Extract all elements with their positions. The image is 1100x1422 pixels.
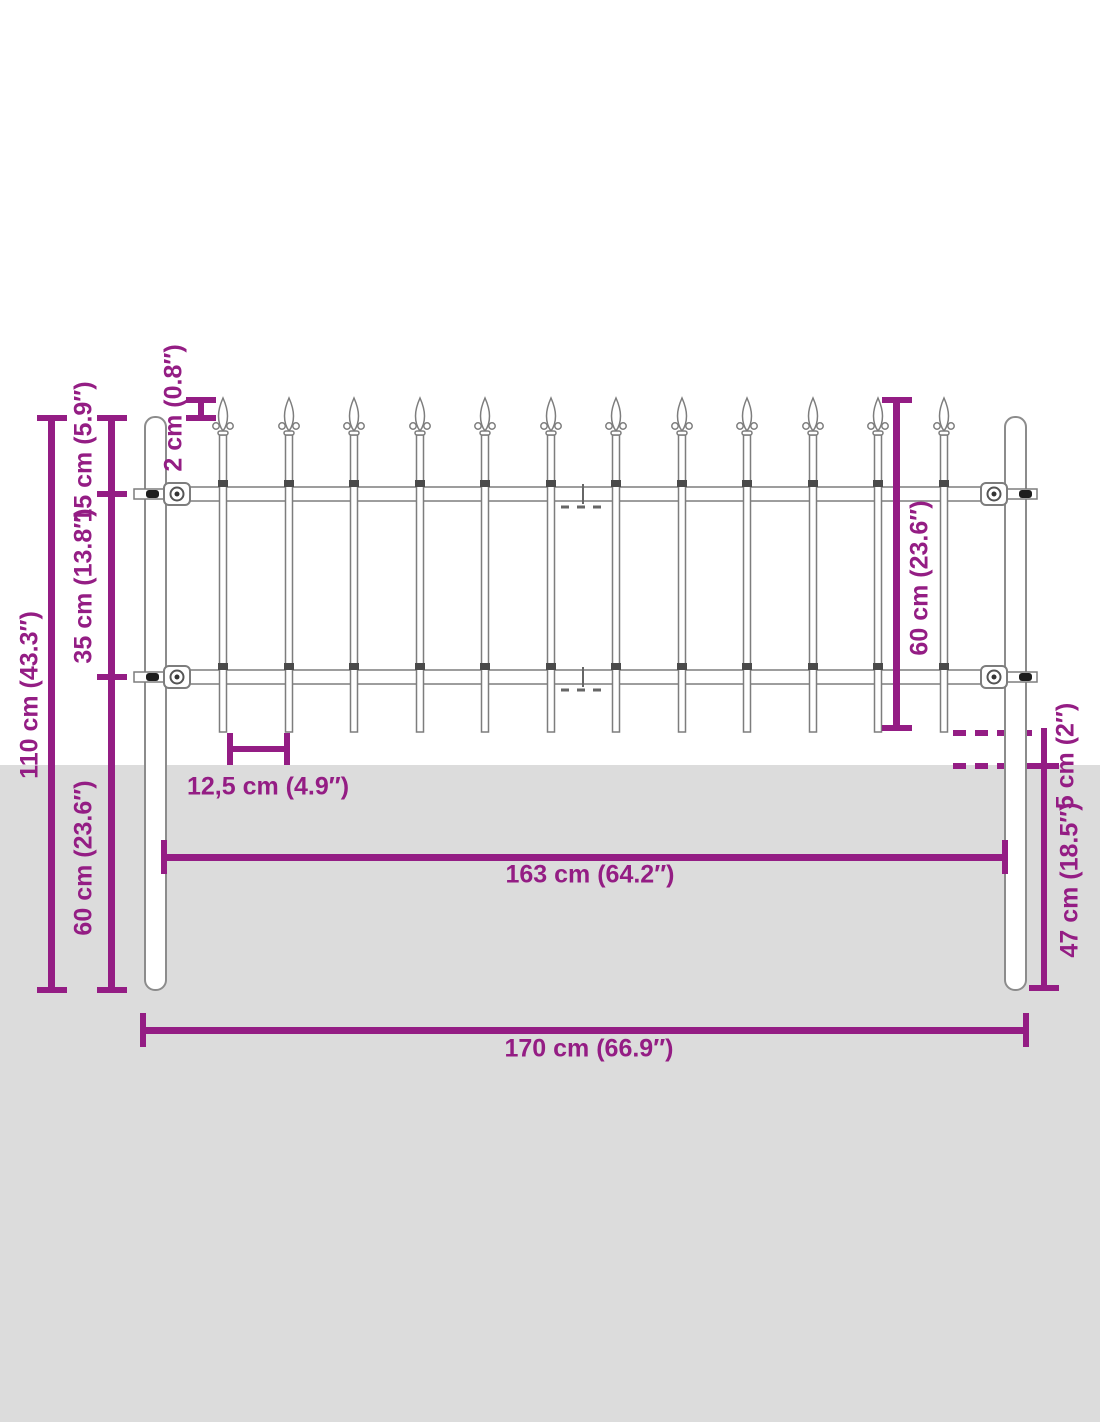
dim-inner-width-cap-left bbox=[161, 840, 167, 874]
dim-left-segments-tick-bottom bbox=[97, 987, 127, 993]
label-spear-above-post-top: 2 cm (0.8″) bbox=[162, 344, 187, 471]
dim-left-segments-tick-rail2 bbox=[97, 674, 127, 680]
dim-total-width-cap-right bbox=[1023, 1013, 1029, 1047]
dim-picket-length-line bbox=[893, 400, 900, 728]
dim-left-segments-tick-rail1 bbox=[97, 491, 127, 497]
dim-spear-offset-connector bbox=[198, 397, 204, 421]
label-inner-width: 163 cm (64.2″) bbox=[505, 863, 674, 888]
dim-picket-length-cap-bottom bbox=[882, 725, 912, 731]
dim-total-width-line bbox=[143, 1027, 1026, 1034]
label-post-depth-below-ground: 47 cm (18.5″) bbox=[1058, 802, 1083, 957]
dim-picket-spacing-connector bbox=[227, 746, 290, 752]
dim-left-segments-tick-top bbox=[97, 415, 127, 421]
dim-total-width-cap-left bbox=[140, 1013, 146, 1047]
fence-drawing bbox=[0, 0, 1100, 1422]
label-picket-spacing: 12,5 cm (4.9″) bbox=[187, 775, 349, 800]
dim-picket-length-cap-top bbox=[882, 397, 912, 403]
dim-inner-width-cap-right bbox=[1002, 840, 1008, 874]
dim-total-height-cap-top bbox=[37, 415, 67, 421]
dim-right-depth-cap-bottom bbox=[1029, 985, 1059, 991]
label-total-height: 110 cm (43.3″) bbox=[18, 611, 43, 779]
label-total-width: 170 cm (66.9″) bbox=[504, 1037, 673, 1062]
label-post-top-to-upper-rail: 15 cm (5.9″) bbox=[72, 381, 97, 522]
label-picket-length: 60 cm (23.6″) bbox=[908, 500, 933, 655]
fence-post-right bbox=[1005, 417, 1026, 990]
fence-post-left bbox=[145, 417, 166, 990]
dim-left-segments-line bbox=[108, 418, 115, 990]
label-lower-rail-to-post-bottom: 60 cm (23.6″) bbox=[72, 780, 97, 935]
label-upper-rail-to-lower-rail: 35 cm (13.8″) bbox=[72, 508, 97, 663]
dim-total-height-cap-bottom bbox=[37, 987, 67, 993]
rail-joint-marks bbox=[561, 484, 607, 690]
dimension-diagram: 110 cm (43.3″) 15 cm (5.9″) 35 cm (13.8″… bbox=[0, 0, 1100, 1422]
dim-total-height-line bbox=[48, 418, 55, 990]
label-picket-ground-clearance: 5 cm (2″) bbox=[1054, 703, 1079, 809]
